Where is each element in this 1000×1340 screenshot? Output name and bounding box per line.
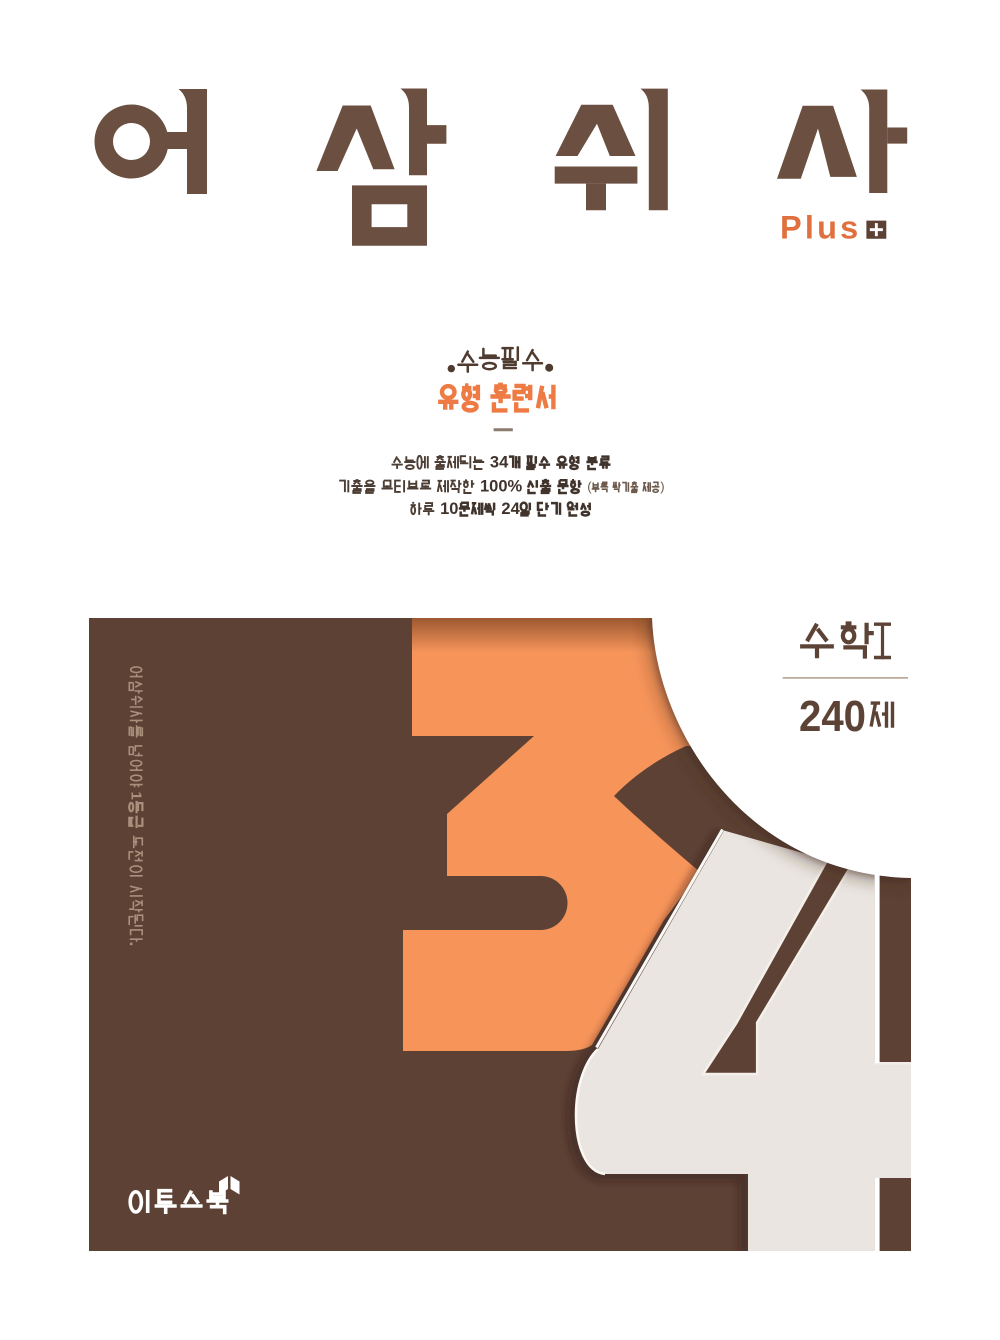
svg-text:Plus: Plus (780, 210, 861, 246)
svg-text:1: 1 (127, 792, 144, 800)
svg-text:24: 24 (501, 500, 520, 518)
svg-text:): ) (660, 479, 664, 494)
svg-text:240: 240 (799, 693, 866, 741)
svg-text:10: 10 (440, 500, 458, 518)
svg-text:34: 34 (490, 454, 509, 472)
svg-text:100%: 100% (480, 478, 523, 496)
svg-text:(: ( (587, 479, 592, 494)
